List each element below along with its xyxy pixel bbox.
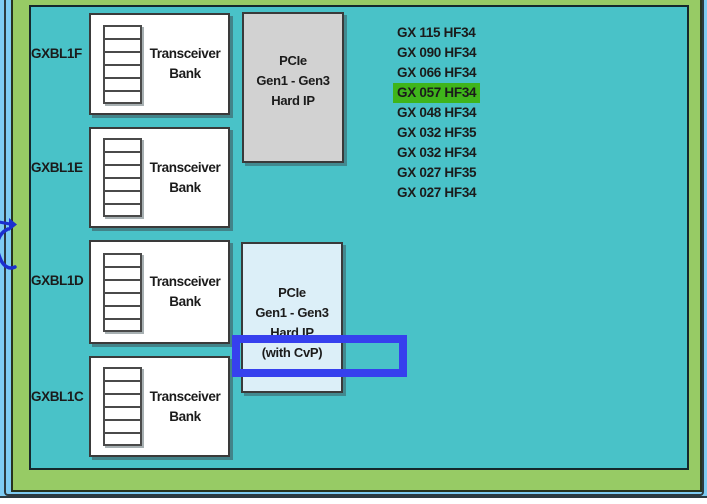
bank-group: GXBL1D Transceiver Bank bbox=[29, 240, 230, 344]
bank-group: GXBL1C Transceiver Bank bbox=[29, 356, 230, 457]
channel-stack-icon bbox=[103, 253, 142, 332]
device-list: GX 115 HF34GX 090 HF34GX 066 HF34GX 057 … bbox=[393, 23, 480, 203]
transceiver-bank-box: Transceiver Bank bbox=[89, 127, 230, 228]
pcie-text-line: PCIe bbox=[243, 283, 341, 303]
pcie-text-line: PCIe bbox=[244, 51, 342, 71]
transceiver-bank-box: Transceiver Bank bbox=[89, 240, 230, 344]
bank-group: GXBL1F Transceiver Bank bbox=[29, 13, 230, 115]
device-item[interactable]: GX 090 HF34 bbox=[393, 43, 480, 63]
bank-label: GXBL1D bbox=[31, 273, 89, 289]
pcie-text-line: Gen1 - Gen3 bbox=[244, 71, 342, 91]
bank-label: GXBL1C bbox=[31, 389, 89, 405]
transceiver-bank-box: Transceiver Bank bbox=[89, 13, 230, 115]
pcie-text-line: Gen1 - Gen3 bbox=[243, 303, 341, 323]
device-item[interactable]: GX 032 HF35 bbox=[393, 123, 480, 143]
pcie-hardip-block: PCIeGen1 - Gen3Hard IP bbox=[242, 12, 344, 163]
bank-group: GXBL1E Transceiver Bank bbox=[29, 127, 230, 228]
channel-stack-icon bbox=[103, 138, 142, 217]
transceiver-bank-label: Transceiver Bank bbox=[142, 387, 228, 427]
device-item[interactable]: GX 027 HF34 bbox=[393, 183, 480, 203]
annotation-arrow-icon bbox=[0, 210, 21, 274]
cvp-annotation-rectangle bbox=[232, 335, 407, 377]
figure-canvas: GXBL1F Transceiver Bank GXBL1E Transceiv… bbox=[0, 0, 707, 504]
channel-stack-icon bbox=[103, 367, 142, 446]
device-item[interactable]: GX 066 HF34 bbox=[393, 63, 480, 83]
transceiver-bank-label: Transceiver Bank bbox=[142, 44, 228, 84]
device-item-highlighted[interactable]: GX 057 HF34 bbox=[393, 83, 480, 103]
device-item[interactable]: GX 048 HF34 bbox=[393, 103, 480, 123]
transceiver-bank-box: Transceiver Bank bbox=[89, 356, 230, 457]
channel-stack-icon bbox=[103, 25, 142, 104]
transceiver-bank-label: Transceiver Bank bbox=[142, 272, 228, 312]
device-item[interactable]: GX 027 HF35 bbox=[393, 163, 480, 183]
pcie-text-line: Hard IP bbox=[244, 91, 342, 111]
device-item[interactable]: GX 032 HF34 bbox=[393, 143, 480, 163]
bank-label: GXBL1E bbox=[31, 160, 89, 176]
bank-label: GXBL1F bbox=[31, 46, 89, 62]
device-item[interactable]: GX 115 HF34 bbox=[393, 23, 480, 43]
transceiver-bank-label: Transceiver Bank bbox=[142, 158, 228, 198]
